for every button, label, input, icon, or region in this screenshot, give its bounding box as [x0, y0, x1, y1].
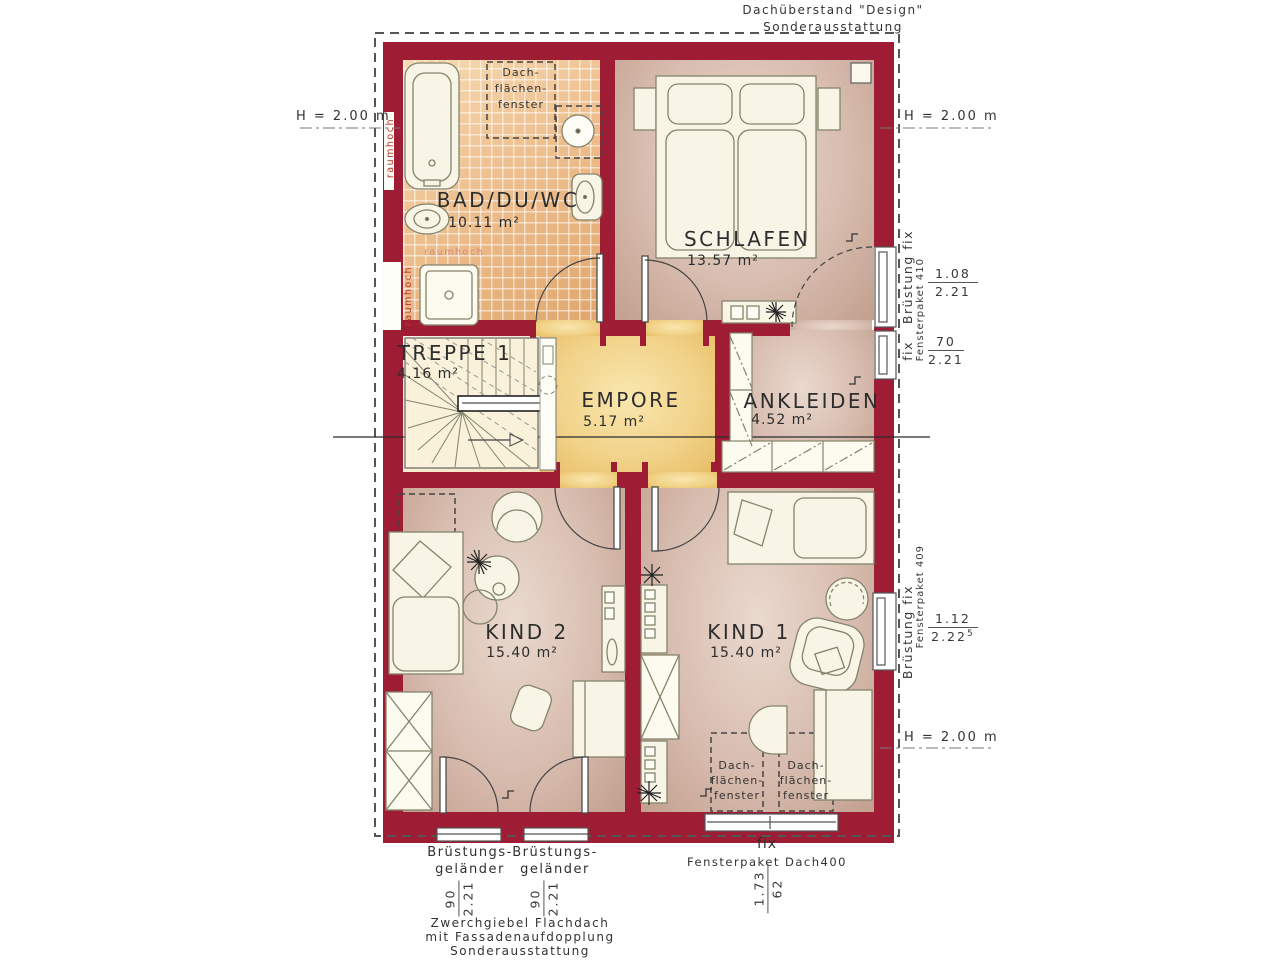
nightstand	[818, 88, 840, 130]
gable-note-line3: Sonderausstattung	[450, 944, 590, 958]
window-ankleiden-label: fix	[900, 341, 915, 361]
window-ankleiden-dimension: 70 2.21	[928, 334, 964, 367]
railing-label-right-line2: geländer	[520, 862, 590, 877]
railing-label-right-line1: Brüstungs-	[512, 845, 598, 860]
door-leaf-balcony-left	[440, 757, 446, 813]
skylight-label-bad: Dach- flächen- fenster	[495, 65, 547, 113]
window-schlafen-package: Fensterpaket 410	[915, 258, 926, 361]
door-leaf-kind2	[614, 487, 620, 549]
raumhoch-label: raumhoch	[385, 118, 396, 178]
raumhoch-label: raumhoch	[403, 266, 414, 326]
room-area-bad: 10.11 m²	[448, 215, 520, 231]
floor-plan: Dachüberstand "Design" Sonderausstattung…	[0, 0, 1280, 960]
window-schlafen-label: Brüstung fix	[900, 230, 915, 324]
plan-drawing	[0, 0, 1280, 960]
room-label-empore: EMPORE	[581, 388, 680, 412]
window-kind1-label: Brüstung fix	[900, 585, 915, 679]
window-kind1-package: Fensterpaket 409	[915, 545, 926, 648]
gable-note-line2: mit Fassadenaufdopplung	[425, 930, 614, 944]
railing-label-left-line2: geländer	[435, 862, 505, 877]
room-label-kind2: KIND 2	[485, 620, 568, 644]
room-area-kind2: 15.40 m²	[486, 645, 558, 661]
door-leaf-schlafen	[642, 256, 648, 322]
window-dach-dimension: 1.73 62	[751, 864, 784, 914]
room-label-kind1: KIND 1	[707, 620, 790, 644]
window-schlafen-dimension: 1.08 2.21	[928, 266, 978, 299]
door-leaf-balcony-right	[582, 757, 588, 813]
height-step-mark	[846, 234, 858, 241]
shower	[420, 265, 478, 325]
room-label-bad: BAD/DU/WC	[437, 188, 580, 212]
railing-label-left-line1: Brüstungs-	[427, 845, 513, 860]
window-ankleiden	[875, 331, 896, 379]
railing-left-dimension: 90 2.21	[442, 881, 475, 917]
plant-icon	[641, 564, 663, 586]
railing-right-dimension: 90 2.21	[527, 881, 560, 917]
skylight-label-kind1-right: Dach- flächen- fenster	[780, 758, 832, 803]
schlafen-furniture	[634, 63, 871, 323]
room-area-kind1: 15.40 m²	[710, 645, 782, 661]
height-step-mark	[849, 377, 861, 384]
roof-overhang-note-line2: Sonderausstattung	[763, 20, 903, 34]
desk-chair	[508, 682, 554, 733]
corner-niche	[851, 63, 871, 83]
height-mark-right-bottom: H = 2.00 m	[904, 730, 999, 745]
room-area-treppe: 4.16 m²	[397, 366, 459, 382]
door-arc-ankleiden	[792, 247, 872, 327]
stair-landing	[540, 338, 556, 470]
room-area-empore: 5.17 m²	[583, 414, 645, 430]
armchair	[786, 614, 868, 696]
height-mark-left: H = 2.00 m	[296, 109, 391, 124]
room-area-schlafen: 13.57 m²	[687, 253, 759, 269]
skylight-label-kind1-left: Dach- flächen- fenster	[711, 758, 763, 803]
height-step-mark	[502, 791, 514, 798]
gable-note-line1: Zwerchgiebel Flachdach	[431, 916, 610, 930]
room-area-ankleiden: 4.52 m²	[751, 412, 813, 428]
raumhoch-label: raumhoch	[424, 247, 484, 258]
desk-chair	[749, 706, 787, 754]
room-label-treppe: TREPPE 1	[398, 341, 513, 365]
nightstand	[634, 88, 656, 130]
window-dach-label: fix	[757, 836, 777, 852]
height-mark-right-top: H = 2.00 m	[904, 109, 999, 124]
roof-overhang-note-line1: Dachüberstand "Design"	[742, 3, 923, 17]
room-label-ankleiden: ANKLEIDEN	[744, 389, 881, 413]
plant-icon	[766, 302, 786, 322]
window-kind1-dimension: 1.12 2.225	[928, 611, 978, 644]
door-leaf-kind1	[652, 487, 658, 551]
armchair	[492, 492, 542, 542]
desk	[573, 681, 625, 757]
ball-chair	[826, 578, 868, 620]
window-schlafen	[875, 247, 896, 327]
room-label-schlafen: SCHLAFEN	[684, 227, 810, 251]
door-leaf-bad	[597, 254, 603, 322]
